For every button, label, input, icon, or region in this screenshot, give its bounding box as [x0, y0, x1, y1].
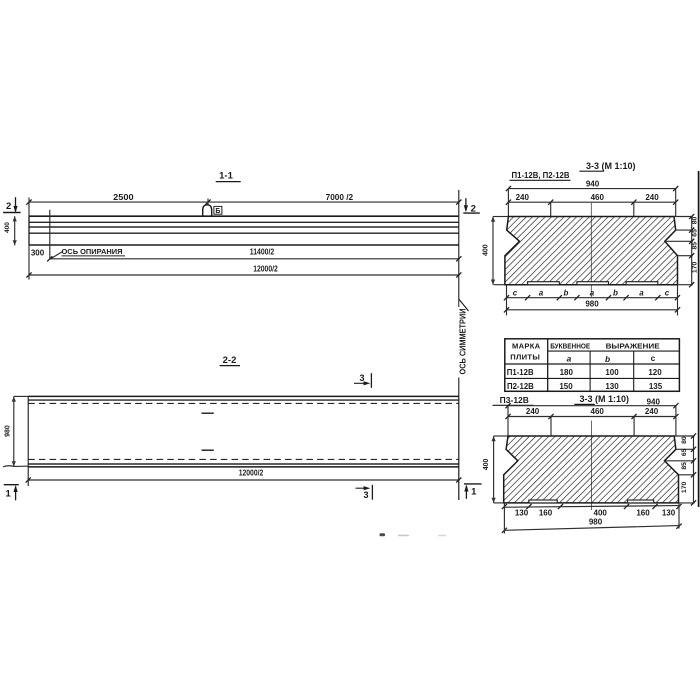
svg-text:460: 460 — [591, 193, 605, 202]
svg-text:a: a — [539, 288, 544, 297]
svg-text:П1-12В, П2-12В: П1-12В, П2-12В — [512, 171, 570, 180]
svg-text:b: b — [564, 288, 569, 297]
svg-text:П2-12В: П2-12В — [507, 382, 534, 391]
svg-text:170: 170 — [681, 482, 688, 494]
svg-text:Б: Б — [215, 208, 220, 215]
svg-text:240: 240 — [645, 193, 659, 202]
svg-text:БУКВЕННОЕ: БУКВЕННОЕ — [550, 341, 590, 350]
svg-text:a: a — [567, 353, 572, 363]
svg-text:12000/2: 12000/2 — [239, 468, 264, 478]
svg-text:80: 80 — [681, 436, 688, 444]
svg-text:400: 400 — [594, 508, 608, 517]
svg-text:11400/2: 11400/2 — [250, 247, 275, 257]
svg-text:80: 80 — [691, 217, 698, 225]
svg-text:100: 100 — [605, 368, 619, 377]
svg-text:ОСЬ ОПИРАНИЯ: ОСЬ ОПИРАНИЯ — [62, 247, 123, 256]
svg-text:240: 240 — [526, 407, 540, 416]
svg-text:a: a — [590, 288, 595, 297]
svg-text:1-1: 1-1 — [219, 171, 233, 182]
svg-text:300: 300 — [31, 248, 45, 257]
svg-text:160: 160 — [636, 508, 650, 517]
svg-text:120: 120 — [648, 368, 662, 377]
svg-text:130: 130 — [662, 508, 676, 517]
svg-text:940: 940 — [647, 397, 661, 406]
svg-text:3: 3 — [359, 373, 364, 383]
svg-text:c: c — [513, 288, 518, 297]
svg-text:П3-12В: П3-12В — [500, 395, 529, 405]
svg-text:3-3 (М 1:10): 3-3 (М 1:10) — [586, 161, 636, 171]
svg-text:130: 130 — [515, 508, 529, 517]
svg-text:c: c — [651, 353, 656, 363]
svg-text:85: 85 — [681, 462, 688, 470]
svg-text:3: 3 — [363, 490, 368, 500]
svg-text:1: 1 — [471, 487, 477, 498]
svg-text:2500: 2500 — [113, 192, 134, 202]
svg-text:12000/2: 12000/2 — [253, 264, 278, 274]
svg-text:980: 980 — [585, 300, 599, 309]
svg-text:940: 940 — [586, 180, 600, 189]
svg-text:160: 160 — [539, 508, 553, 517]
svg-text:7000 /2: 7000 /2 — [326, 192, 354, 202]
svg-text:400: 400 — [4, 222, 11, 233]
svg-text:c: c — [665, 288, 670, 297]
svg-text:400: 400 — [483, 458, 490, 470]
svg-text:П1-12В: П1-12В — [507, 368, 534, 377]
svg-text:1: 1 — [6, 489, 12, 500]
svg-text:b: b — [613, 288, 618, 297]
svg-text:2-2: 2-2 — [223, 355, 237, 366]
svg-text:85: 85 — [691, 242, 698, 250]
svg-text:a: a — [639, 288, 644, 297]
svg-text:ПЛИТЫ: ПЛИТЫ — [510, 353, 540, 362]
svg-text:ВЫРАЖЕНИЕ: ВЫРАЖЕНИЕ — [606, 341, 660, 350]
svg-text:65: 65 — [681, 448, 688, 456]
svg-text:2: 2 — [6, 201, 11, 212]
svg-text:b: b — [605, 354, 610, 364]
svg-text:240: 240 — [516, 193, 530, 202]
svg-text:130: 130 — [605, 382, 619, 391]
svg-text:460: 460 — [591, 407, 605, 416]
svg-text:400: 400 — [483, 244, 490, 256]
svg-text:180: 180 — [560, 368, 574, 377]
svg-text:3-3 (М 1:10): 3-3 (М 1:10) — [580, 394, 630, 404]
svg-text:240: 240 — [645, 407, 659, 416]
svg-text:МАРКА: МАРКА — [512, 342, 541, 351]
svg-text:135: 135 — [649, 382, 663, 391]
svg-text:65: 65 — [691, 229, 698, 237]
svg-text:ОСЬ СИММЕТРИИ: ОСЬ СИММЕТРИИ — [459, 308, 468, 374]
svg-text:980: 980 — [589, 518, 603, 527]
svg-text:150: 150 — [559, 382, 573, 391]
svg-text:170: 170 — [691, 262, 698, 274]
svg-text:980: 980 — [4, 425, 11, 437]
